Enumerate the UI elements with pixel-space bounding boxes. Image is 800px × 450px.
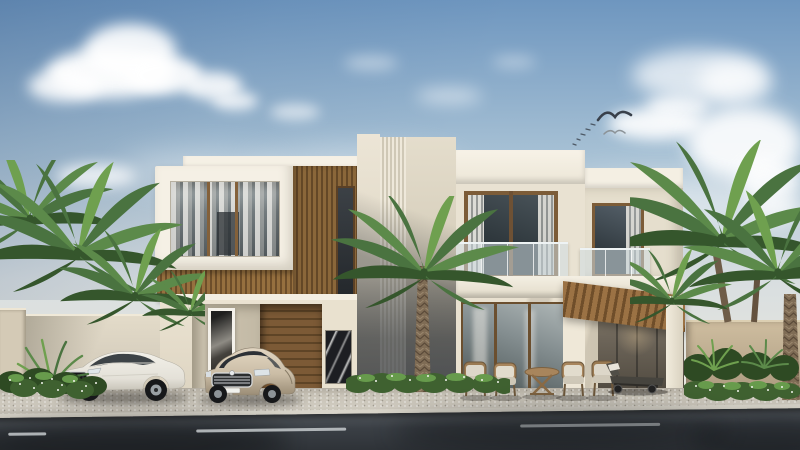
armchair (562, 362, 584, 396)
right-garden-bushes (684, 328, 800, 404)
left-palm-trees (0, 160, 205, 340)
sun-lounger (604, 356, 674, 396)
champagne-sedan (197, 336, 303, 404)
center-hedge (346, 366, 510, 400)
window-mullion (207, 182, 210, 256)
right-palm-trees (630, 140, 800, 340)
villa-exterior-rendering (0, 0, 800, 450)
distant-birds (573, 124, 595, 145)
large-bird-icon (598, 112, 631, 120)
road-shadow (390, 409, 730, 450)
lane-marking-dash (8, 432, 46, 435)
headlight (206, 371, 211, 377)
coffee-table (525, 368, 559, 395)
window-mullion (235, 182, 238, 256)
left-flowering-hedge (0, 356, 112, 402)
headlight (254, 369, 270, 376)
right-wing-cornice (452, 150, 585, 184)
small-bird-icon (604, 131, 625, 135)
